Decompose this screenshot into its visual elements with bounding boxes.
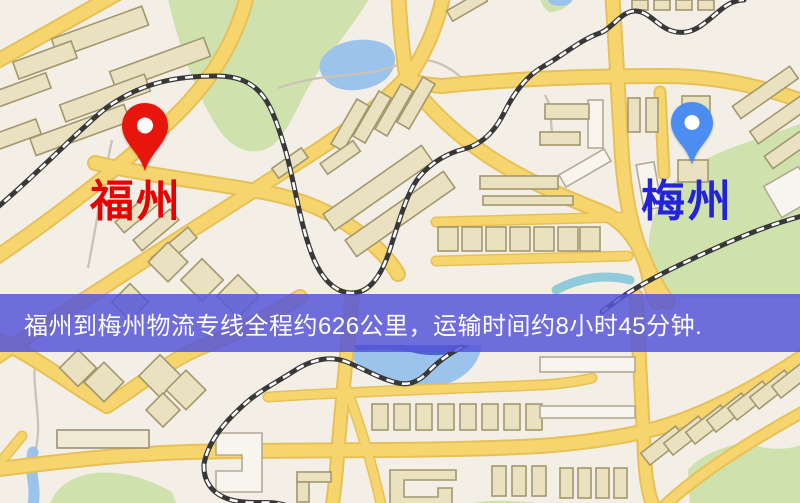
origin-pin-icon[interactable]	[120, 101, 170, 173]
map-container[interactable]: 福州 梅州 福州到梅州物流专线全程约626公里，运输时间约8小时45分钟.	[0, 0, 800, 503]
destination-pin-icon[interactable]	[669, 100, 715, 166]
route-banner: 福州到梅州物流专线全程约626公里，运输时间约8小时45分钟.	[0, 294, 800, 352]
map-canvas[interactable]	[0, 0, 800, 503]
destination-label: 梅州	[641, 180, 733, 224]
route-banner-text: 福州到梅州物流专线全程约626公里，运输时间约8小时45分钟.	[24, 306, 702, 341]
origin-label: 福州	[90, 180, 182, 224]
